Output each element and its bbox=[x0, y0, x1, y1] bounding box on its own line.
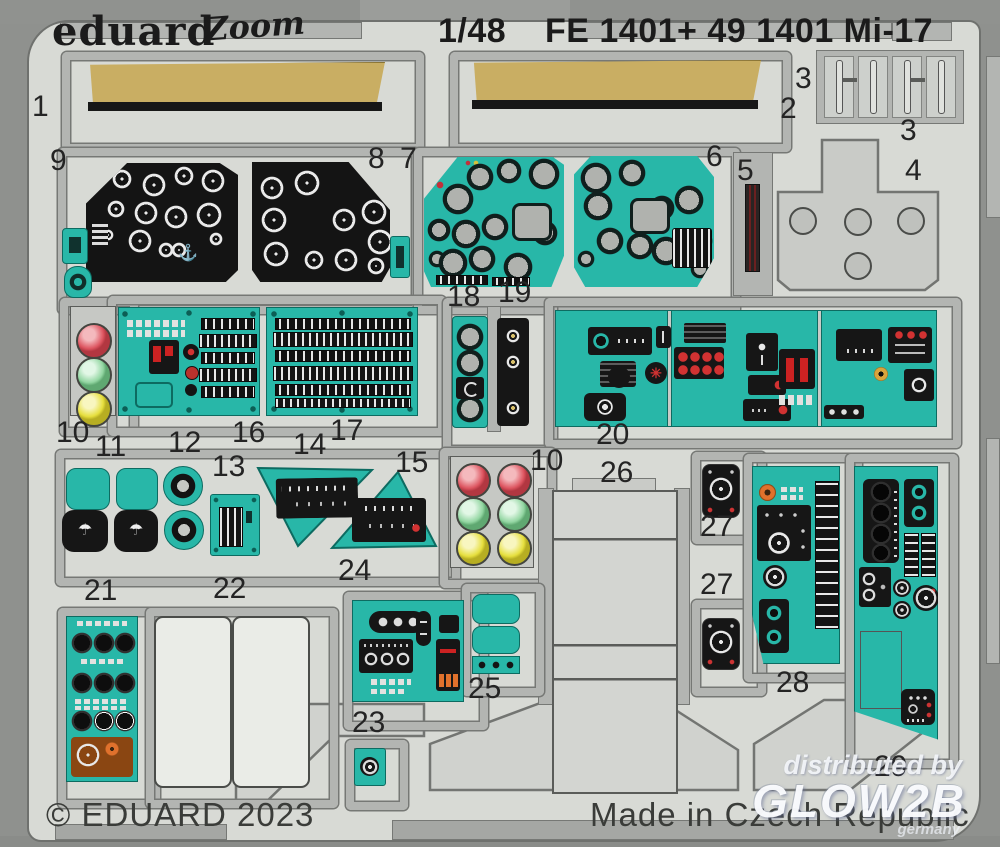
part-number-label: 18 bbox=[447, 282, 480, 312]
part-number-label: 11 bbox=[95, 432, 126, 462]
watermark-germany: germany bbox=[897, 822, 960, 837]
part-number-label: 5 bbox=[737, 156, 754, 186]
part-number-label: 14 bbox=[293, 430, 326, 460]
part-number-label: 21 bbox=[84, 576, 117, 606]
part-number-label: 7 bbox=[400, 144, 417, 174]
part-number-label: 27 bbox=[700, 570, 733, 600]
part-number-label: 10 bbox=[56, 418, 89, 448]
part-number-label: 26 bbox=[600, 458, 633, 488]
part-number-label: 27 bbox=[700, 512, 733, 542]
distributor-watermark: distributed by GLOW2B germany bbox=[690, 748, 970, 840]
part-number-label: 2 bbox=[780, 94, 797, 124]
part-number-label: 23 bbox=[352, 708, 385, 738]
part-number-label: 19 bbox=[498, 278, 531, 308]
part-number-label: 22 bbox=[213, 574, 246, 604]
part-number-label: 24 bbox=[338, 556, 371, 586]
part-number-label: 12 bbox=[168, 428, 201, 458]
part-number-label: 1 bbox=[32, 92, 49, 122]
part-labels-layer: 1233498765181910111216131417152010262727… bbox=[0, 0, 1000, 847]
part-number-label: 13 bbox=[212, 452, 245, 482]
part-number-label: 3 bbox=[795, 64, 812, 94]
part-number-label: 10 bbox=[530, 446, 563, 476]
part-number-label: 4 bbox=[905, 156, 922, 186]
part-number-label: 16 bbox=[232, 418, 265, 448]
part-number-label: 28 bbox=[776, 668, 809, 698]
copyright-text: © EDUARD 2023 bbox=[46, 798, 314, 831]
part-number-label: 3 bbox=[900, 116, 917, 146]
watermark-glow2b-logo: GLOW2B bbox=[752, 778, 966, 824]
part-number-label: 20 bbox=[596, 420, 629, 450]
part-number-label: 6 bbox=[706, 142, 723, 172]
part-number-label: 15 bbox=[395, 448, 428, 478]
photoetch-sheet-scan: eduard Zoom 1/48 FE 1401+ 49 1401 Mi-17 bbox=[0, 0, 1000, 847]
part-number-label: 17 bbox=[330, 416, 363, 446]
part-number-label: 8 bbox=[368, 144, 385, 174]
part-number-label: 25 bbox=[468, 674, 501, 704]
part-number-label: 9 bbox=[50, 146, 67, 176]
